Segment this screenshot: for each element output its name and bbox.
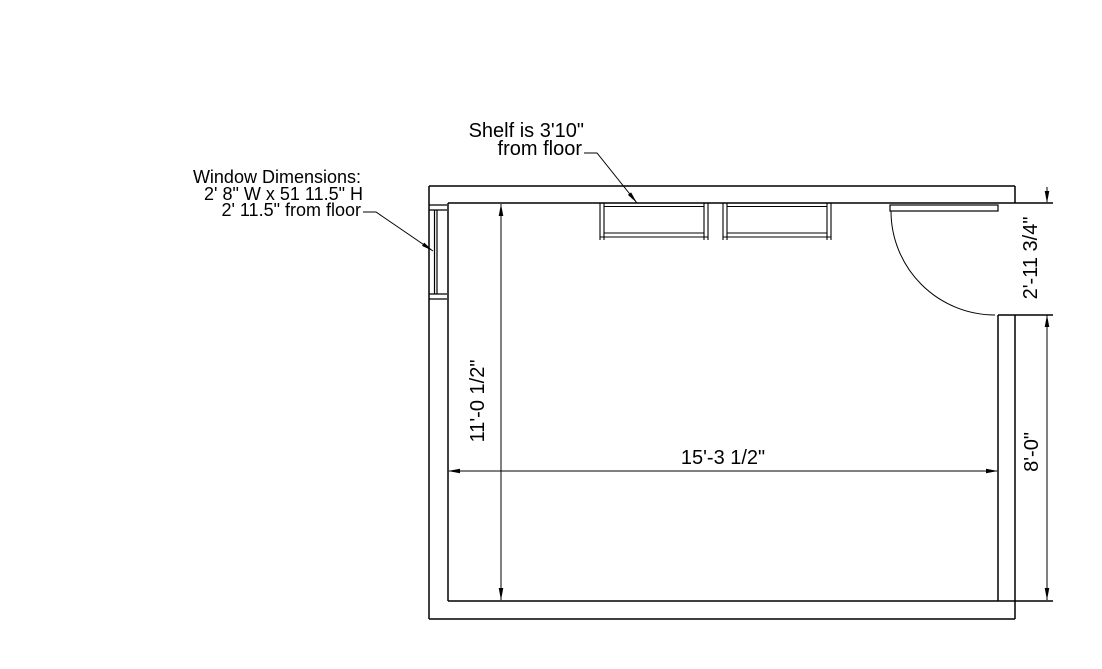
- dim-wall-below-door-label: 8'-0": [1021, 432, 1043, 472]
- door-leaf: [890, 205, 998, 211]
- shelf-leader-arrow: [628, 192, 637, 203]
- dim-arrow-right: [986, 469, 998, 473]
- window-leader-line: [363, 212, 433, 251]
- room-walls: [429, 186, 1053, 619]
- dim-arrow-left: [448, 469, 460, 473]
- dimension-room-height: 11'-0 1/2": [467, 204, 503, 600]
- dim-arrow-up: [499, 204, 504, 216]
- door-swing-arc: [891, 211, 995, 315]
- window-symbol: [429, 205, 447, 299]
- dim-arrow-down: [499, 588, 504, 600]
- dim-room-height-label: 11'-0 1/2": [467, 360, 489, 443]
- floor-plan-svg: 11'-0 1/2" 15'-3 1/2" 2'-11 3/4" 8'-0" S…: [0, 0, 1102, 669]
- window-leader-arrow: [422, 243, 433, 251]
- dim-arrow-down: [1045, 191, 1050, 203]
- door-symbol: [890, 205, 998, 315]
- dimension-wall-below-door: 8'-0": [1021, 315, 1049, 600]
- dimension-room-width: 15'-3 1/2": [448, 447, 998, 473]
- shelf-1: [600, 203, 708, 240]
- dim-arrow-down: [1045, 588, 1050, 600]
- shelf-note-line2: from floor: [498, 138, 583, 160]
- window-note-line3: 2' 11.5" from floor: [221, 200, 361, 220]
- dim-door-opening-label: 2'-11 3/4": [1020, 217, 1042, 300]
- dimension-door-opening: 2'-11 3/4": [1020, 187, 1049, 327]
- shelf-2: [723, 203, 831, 240]
- floor-plan-canvas: 11'-0 1/2" 15'-3 1/2" 2'-11 3/4" 8'-0" S…: [0, 0, 1102, 669]
- window-note: Window Dimensions: 2' 8" W x 51 11.5" H …: [193, 167, 433, 251]
- shelf-note: Shelf is 3'10" from floor: [469, 120, 637, 203]
- dim-room-width-label: 15'-3 1/2": [681, 447, 765, 469]
